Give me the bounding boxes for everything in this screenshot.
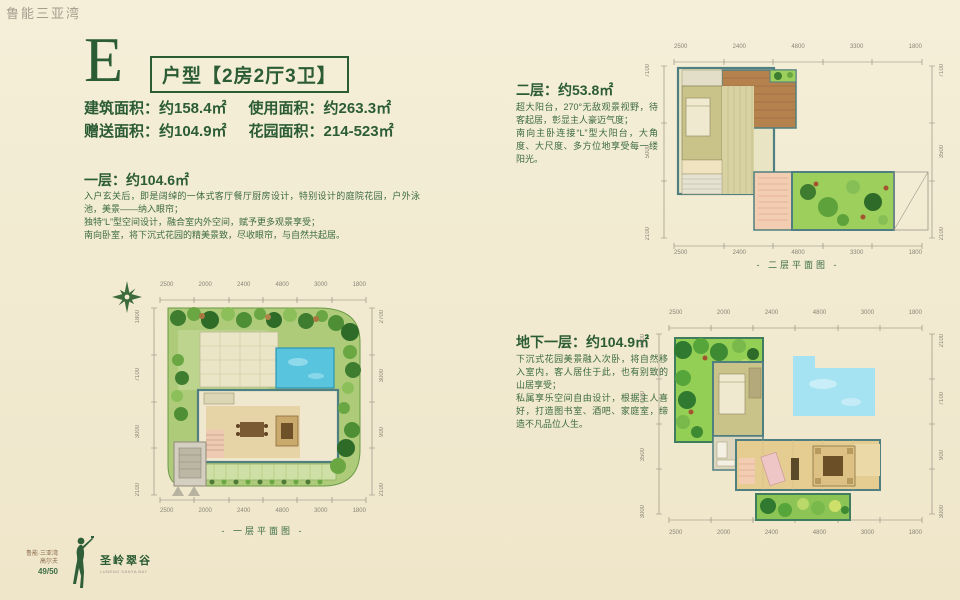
dim-label: 1800 (135, 310, 141, 323)
plan2-dims-top: 25002400480033001800 (674, 44, 922, 50)
project-name-sub: LUNENG SANYA BAY (100, 569, 152, 574)
page-number: 49/50 (26, 568, 58, 576)
dining-table (240, 422, 264, 437)
wardrobe (749, 368, 761, 398)
dim-label: 4800 (791, 44, 804, 50)
footer-project-name-block: 圣岭翠谷 LUNENG SANYA BAY (100, 552, 152, 574)
dim-label: 1800 (353, 282, 366, 288)
area-row-2: 赠送面积：约104.9㎡ 花园面积：214-523㎡ (84, 120, 394, 141)
dim-label: 1800 (909, 44, 922, 50)
dim-label: 2500 (160, 508, 173, 514)
dim-label: 1800 (909, 310, 922, 316)
dim-label: 2400 (765, 530, 778, 536)
floor2-description: 超大阳台，270°无敌观景视野，待客起居，彰显主人豪迈气度； 南向主卧连接“L”… (516, 101, 658, 166)
dim-label: 900 (379, 427, 385, 437)
footer-brand-text: 鲁能·三亚湾 高尔夫 49/50 (26, 550, 58, 576)
area-row-1: 建筑面积：约158.4㎡ 使用面积：约263.3㎡ (84, 97, 391, 118)
dim-label: 2100 (135, 483, 141, 496)
dim-label: 3500 (939, 145, 945, 158)
plan3-dims-left: 2100710035003000 (640, 334, 646, 518)
garden-area: 花园面积：214-523㎡ (249, 120, 394, 141)
dim-label: 3000 (640, 505, 646, 518)
floor1-heading: 一层：约104.6㎡ (84, 170, 189, 190)
dim-label: 2100 (379, 483, 385, 496)
kitchen-counter (204, 393, 234, 404)
dim-label: 2000 (199, 282, 212, 288)
usable-area: 使用面积：约263.3㎡ (249, 97, 392, 118)
floor2-plan: 25002400480033001800 710050002100 710035… (658, 46, 938, 258)
dim-label: 3000 (861, 310, 874, 316)
dim-label: 2500 (160, 282, 173, 288)
dim-label: 3300 (850, 44, 863, 50)
dim-label: 900 (939, 450, 945, 460)
plan2-dims-left: 710050002100 (645, 64, 651, 240)
building-area: 建筑面积：约158.4㎡ (84, 97, 227, 118)
dim-label: 3000 (379, 369, 385, 382)
brand-line-1: 鲁能·三亚湾 (26, 550, 58, 558)
wardrobe (682, 160, 722, 174)
dim-label: 2500 (674, 44, 687, 50)
plan3-dims-right: 210071009003000 (939, 334, 945, 518)
plan1-dims-right: 270030009002100 (379, 310, 385, 496)
golfer-icon (64, 536, 94, 590)
dim-label: 2400 (237, 508, 250, 514)
dim-label: 4800 (276, 508, 289, 514)
dim-label: 7100 (645, 64, 651, 77)
dim-label: 3000 (314, 282, 327, 288)
dim-label: 4800 (813, 530, 826, 536)
dim-label: 2700 (379, 310, 385, 323)
basement-plan: 250020002400480030001800 210071003500300… (653, 312, 938, 536)
swimming-pool (276, 348, 334, 388)
bathroom (682, 70, 722, 86)
dim-label: 4800 (276, 282, 289, 288)
dim-label: 4800 (813, 310, 826, 316)
floor1-plan-caption: - 一层平面图 - (148, 524, 378, 537)
floor1-description: 入户玄关后，即是阔绰的一体式客厅餐厅厨房设计，特别设计的庭院花园，户外泳池，美景… (84, 190, 420, 242)
dim-label: 2500 (669, 530, 682, 536)
dim-label: 2000 (199, 508, 212, 514)
plan3-dims-bottom: 250020002400480030001800 (669, 530, 922, 536)
dim-label: 2400 (733, 44, 746, 50)
corridor (722, 86, 754, 194)
brochure-page: 鲁能三亚湾 E 户型【2房2厅3卫】 建筑面积：约158.4㎡ 使用面积：约26… (0, 0, 960, 600)
plan1-dims-top: 250020002400480030001800 (160, 282, 366, 288)
plan1-dims-left: 1800710030002100 (135, 310, 141, 496)
dim-label: 2000 (717, 530, 730, 536)
plan2-dims-right: 710035002100 (939, 64, 945, 240)
dim-label: 7100 (640, 391, 646, 404)
console-table (791, 458, 799, 480)
dim-label: 3000 (314, 508, 327, 514)
floor1-plan-drawing (148, 290, 378, 505)
dim-label: 2000 (717, 310, 730, 316)
unit-type-letter: E (84, 28, 123, 92)
project-name: 圣岭翠谷 (100, 552, 152, 568)
brand-line-2: 高尔夫 (26, 558, 58, 566)
footer-logo: 鲁能·三亚湾 高尔夫 49/50 圣岭翠谷 LUNENG SANYA BAY (26, 536, 152, 590)
dim-label: 3000 (861, 530, 874, 536)
plan1-dims-bottom: 250020002400480030001800 (160, 508, 366, 514)
compass-icon (110, 280, 144, 314)
courtyard-paving (200, 332, 278, 387)
basement-heading: 地下一层：约104.9㎡ (516, 332, 649, 352)
dim-label: 2100 (939, 227, 945, 240)
gift-area: 赠送面积：约104.9㎡ (84, 120, 227, 141)
tatami-sofa-set (813, 446, 855, 486)
dim-label: 3000 (135, 425, 141, 438)
dim-label: 7100 (939, 64, 945, 77)
dim-label: 7100 (135, 368, 141, 381)
floor2-plan-drawing (658, 52, 938, 252)
stairs (739, 458, 755, 484)
dim-label: 7100 (939, 392, 945, 405)
floor2-plan-caption: - 二层平面图 - (658, 258, 938, 271)
dim-label: 2100 (645, 227, 651, 240)
dim-label: 1800 (353, 508, 366, 514)
brand-watermark: 鲁能三亚湾 (6, 3, 81, 22)
dim-label: 2400 (237, 282, 250, 288)
dim-label: 2100 (939, 334, 945, 347)
dim-label: 3500 (640, 448, 646, 461)
deck (206, 464, 336, 480)
bed (719, 374, 745, 414)
dim-label: 2500 (669, 310, 682, 316)
dim-label: 2400 (765, 310, 778, 316)
dim-label: 5000 (645, 145, 651, 158)
stairs (206, 430, 224, 458)
floor2-heading: 二层：约53.8㎡ (516, 80, 613, 100)
plan3-dims-top: 250020002400480030001800 (669, 310, 922, 316)
stairwell (754, 172, 792, 230)
floor1-plan: 250020002400480030001800 180071003000210… (148, 284, 378, 516)
dim-label: 2100 (640, 334, 646, 347)
basement-plan-drawing (653, 318, 938, 528)
unit-type-title: 户型【2房2厅3卫】 (150, 56, 349, 93)
bed (686, 98, 710, 136)
dim-label: 1800 (909, 530, 922, 536)
dim-label: 3000 (939, 505, 945, 518)
